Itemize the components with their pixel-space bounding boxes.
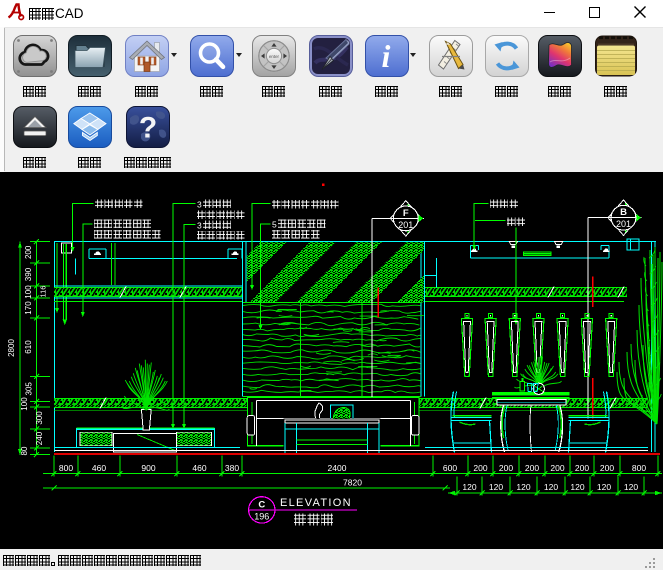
- svg-text:120: 120: [489, 482, 503, 492]
- svg-text:460: 460: [192, 463, 206, 473]
- svg-text:196: 196: [254, 512, 269, 522]
- svg-text:200: 200: [473, 463, 487, 473]
- svg-text:120: 120: [516, 482, 530, 492]
- svg-text:120: 120: [462, 482, 476, 492]
- svg-text:200: 200: [550, 463, 564, 473]
- svg-text:100: 100: [20, 397, 29, 411]
- svg-text:610: 610: [24, 340, 33, 354]
- svg-text:2800: 2800: [7, 339, 16, 357]
- svg-text:120: 120: [544, 482, 558, 492]
- svg-text:170: 170: [24, 301, 33, 315]
- svg-text:600: 600: [443, 463, 457, 473]
- svg-text:900: 900: [141, 463, 155, 473]
- svg-text:300: 300: [35, 411, 44, 425]
- svg-text:C: C: [258, 500, 265, 511]
- svg-text:3: 3: [197, 221, 202, 231]
- svg-text:201: 201: [616, 219, 631, 229]
- svg-text:ELEVATION: ELEVATION: [280, 497, 352, 509]
- svg-text:201: 201: [398, 220, 413, 230]
- svg-text:?: ?: [139, 112, 157, 145]
- svg-text:120: 120: [624, 482, 638, 492]
- svg-text:200: 200: [499, 463, 513, 473]
- svg-text:3: 3: [197, 200, 202, 210]
- svg-text:460: 460: [92, 463, 106, 473]
- svg-text:116: 116: [39, 286, 48, 298]
- svg-text:380: 380: [225, 463, 239, 473]
- svg-text:390: 390: [24, 267, 33, 281]
- svg-text:200: 200: [24, 245, 33, 259]
- svg-text:200: 200: [600, 463, 614, 473]
- svg-text:B: B: [620, 207, 627, 218]
- svg-text:120: 120: [597, 482, 611, 492]
- svg-text:240: 240: [35, 431, 44, 445]
- svg-text:5: 5: [272, 220, 277, 230]
- svg-text:200: 200: [525, 463, 539, 473]
- svg-text:800: 800: [632, 463, 646, 473]
- svg-text:200: 200: [575, 463, 589, 473]
- svg-text:7820: 7820: [343, 478, 362, 488]
- svg-text:2400: 2400: [328, 463, 347, 473]
- svg-text:800: 800: [59, 463, 73, 473]
- svg-text:120: 120: [570, 482, 584, 492]
- svg-text:enter: enter: [269, 54, 280, 59]
- svg-text:F: F: [403, 208, 409, 219]
- svg-text:305: 305: [25, 382, 34, 396]
- svg-text:i: i: [382, 38, 391, 74]
- svg-text:80: 80: [20, 446, 29, 455]
- svg-text:100: 100: [24, 285, 33, 299]
